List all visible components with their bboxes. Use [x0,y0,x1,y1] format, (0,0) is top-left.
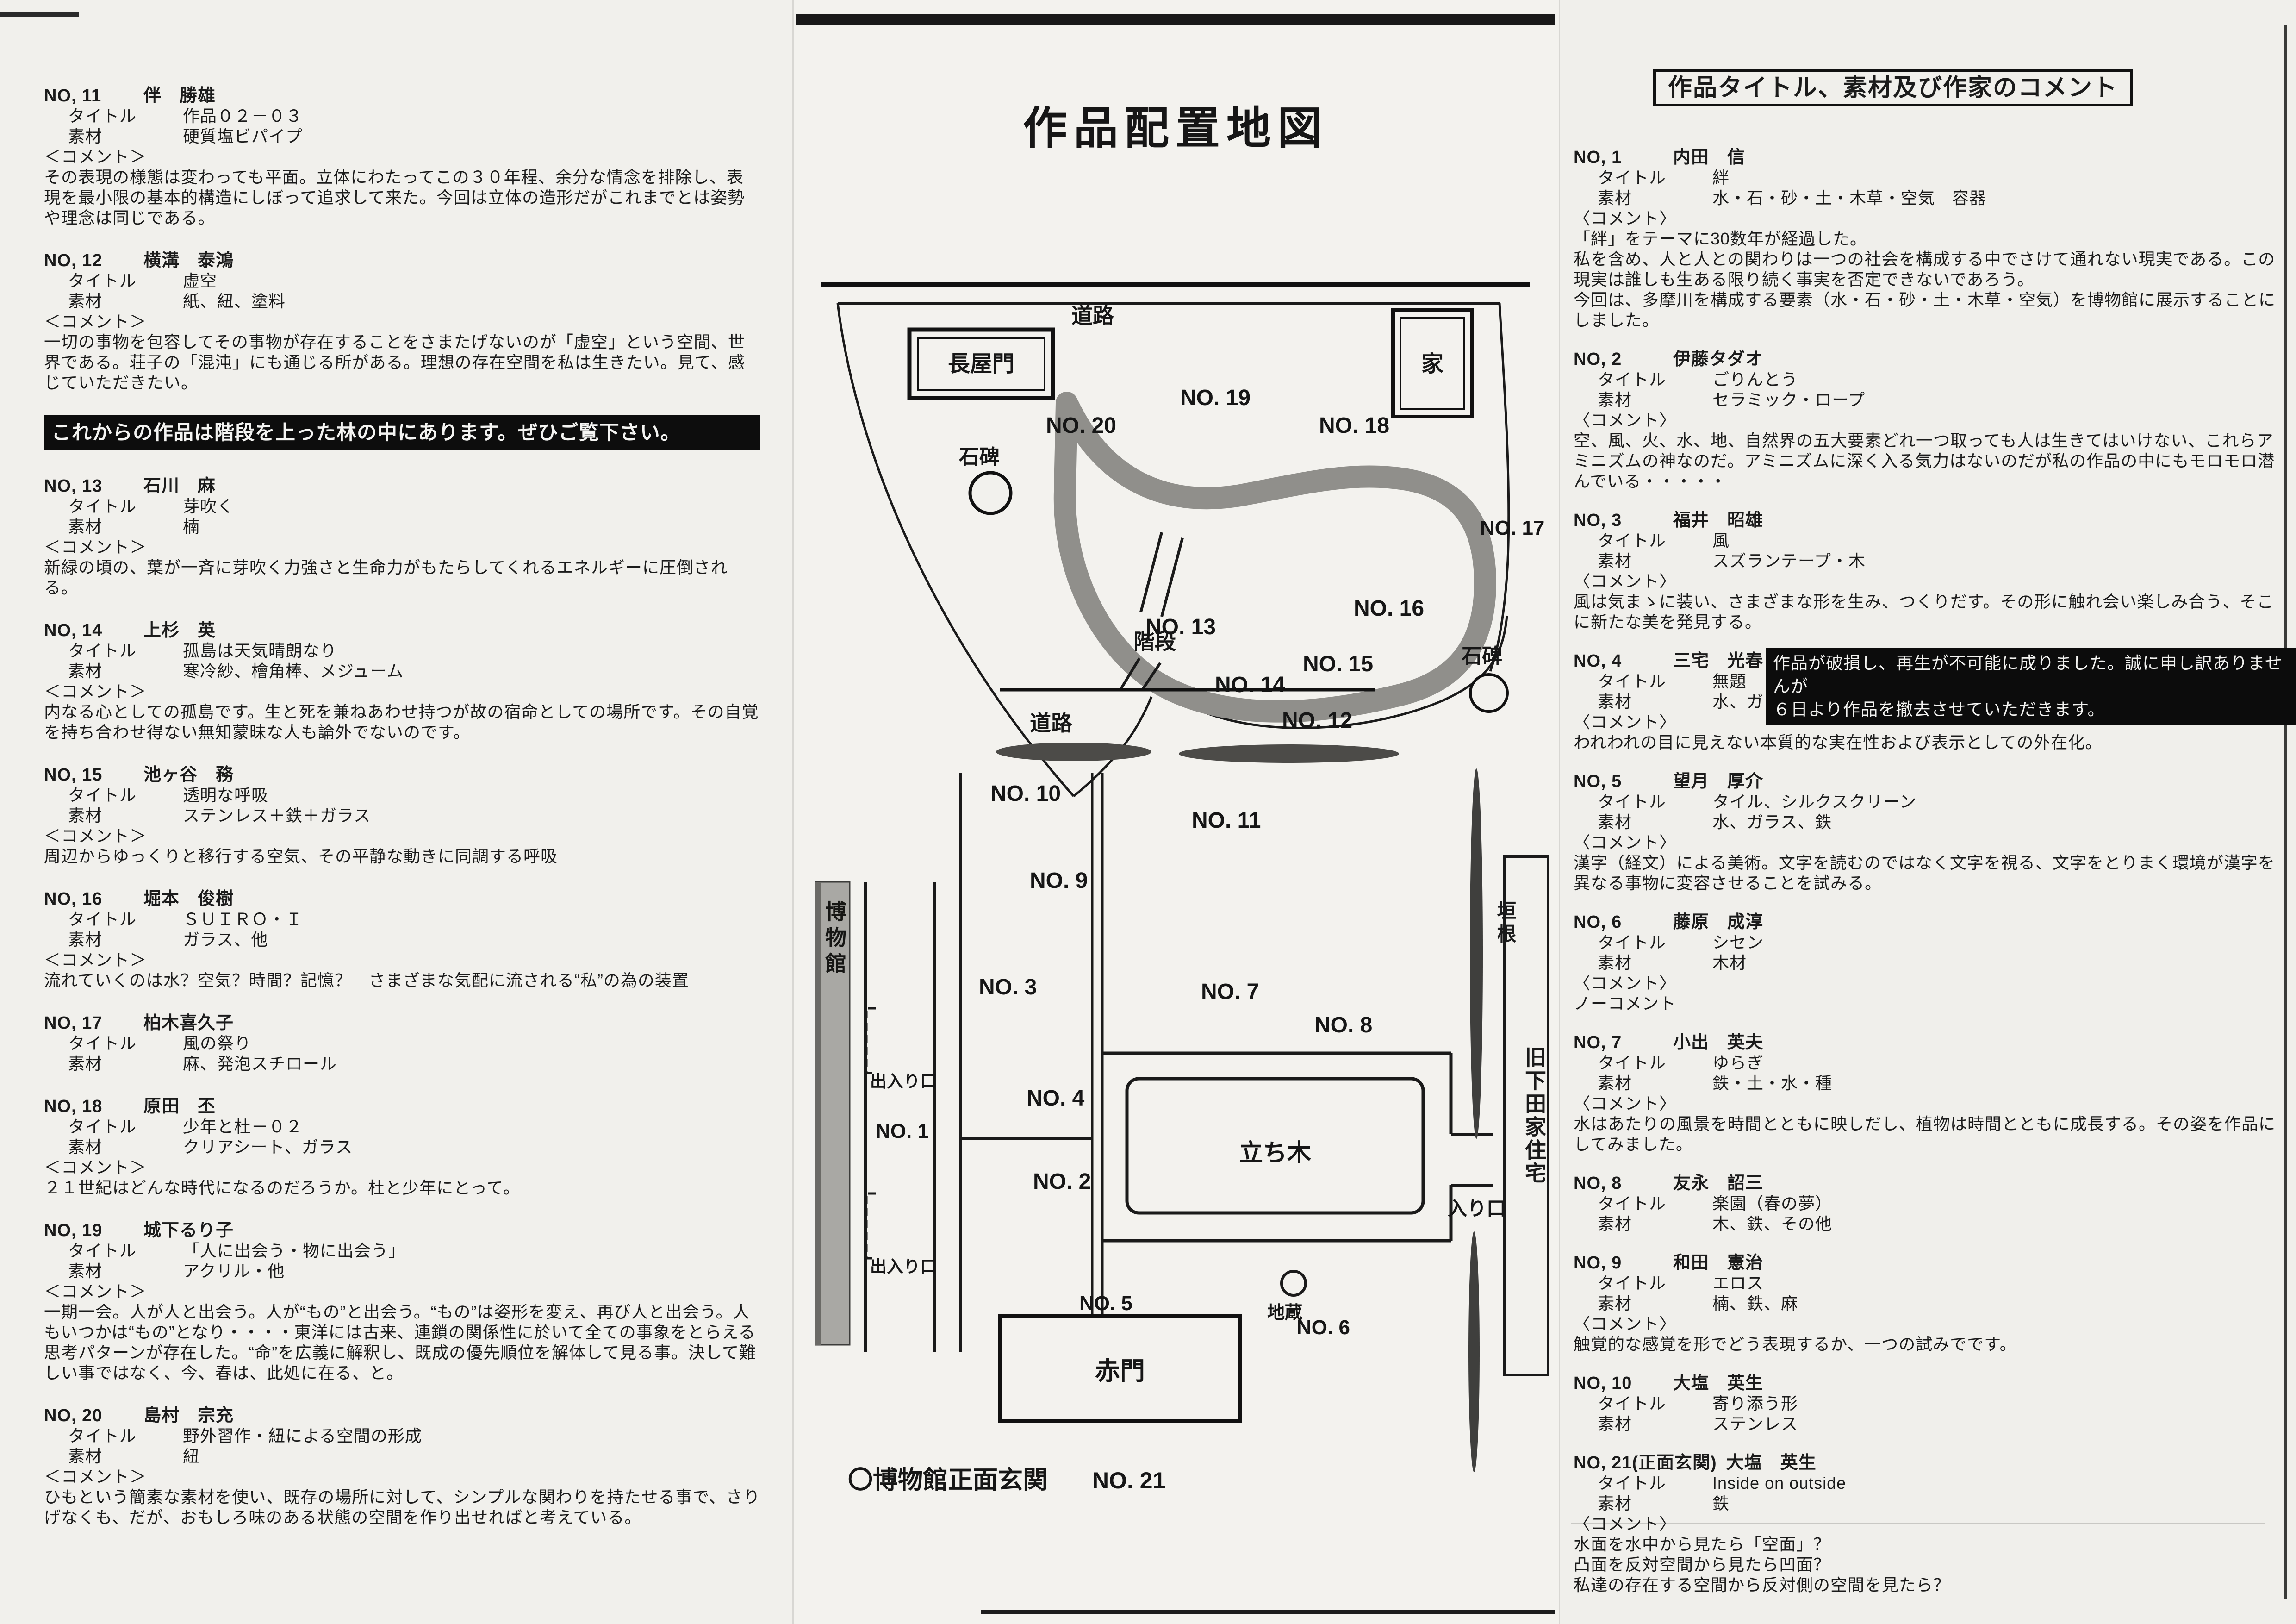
entry-header: NO, 11 伴 勝雄 [44,86,760,106]
title-label: タイトル [1598,671,1712,692]
entry-header: NO, 17 柏木喜久子 [44,1013,760,1033]
removal-notice-line2: ６日より作品を撤去させていただきます。 [1773,698,2296,721]
artist-name: 内田 信 [1673,147,1745,168]
artist-name: 望月 厚介 [1673,771,1763,792]
scan-artifact-right-edge [2284,25,2287,1599]
artwork-material: 鉄 [1712,1493,2281,1514]
title-row: タイトル 孤島は天気晴朗なり [44,641,760,661]
material-row: 素材 ガラス、他 [44,930,760,950]
comment-text: 風は気まゝに装い、さまざまな形を生み、つくりだす。その形に触れ会い楽しみ合う、そ… [1574,592,2281,632]
artwork-entry: NO, 2 伊藤タダオ タイトル ごりんとう 素材 セラミック・ロープ 〈コメン… [1574,349,2281,492]
entry-header: NO, 6 藤原 成淳 [1574,912,2281,932]
artist-name: 石川 麻 [143,476,216,496]
material-row: 素材 鉄 [1574,1493,2281,1514]
hedge-upper [1470,768,1483,1139]
entry-number: NO, 9 [1574,1253,1664,1273]
stairs-notice-banner: これからの作品は階段を上った林の中にあります。ぜひご覧下さい。 [44,415,760,450]
artist-name: 藤原 成淳 [1673,912,1763,932]
comment-label: 〈コメント〉 [1574,973,2281,993]
material-label: 素材 [1598,1493,1712,1514]
artwork-material: 寒冷紗、檜角棒、メジューム [183,661,760,681]
section-header: 作品タイトル、素材及び作家のコメント [1653,69,2133,106]
artwork-title: ＳＵＩＲＯ・Ｉ [183,909,760,930]
material-row: 素材 木材 [1574,953,2281,973]
artwork-title: 作品０２－０３ [183,106,760,126]
artwork-placement-map: 作品配置地図 道路 長屋門 家 石碑 石碑 NO. 20 NO. 19 NO. … [796,14,1555,1616]
entry-header: NO, 13 石川 麻 [44,476,760,496]
entry-number: NO, 7 [1574,1032,1664,1053]
entry-number: NO, 5 [1574,771,1664,792]
material-label: 素材 [68,291,183,312]
artwork-material: ガラス、他 [183,930,760,950]
title-row: タイトル ごりんとう [1574,369,2281,390]
artwork-title: エロス [1712,1273,2281,1293]
artwork-title: シセン [1712,932,2281,953]
artwork-material: 硬質塩ビパイプ [183,126,760,147]
entry-number: NO, 3 [1574,510,1664,531]
removal-notice: 作品が破損し、再生が不可能に成りました。誠に申し訳ありませんが ６日より作品を撤… [1766,648,2296,725]
material-row: 素材 ステンレス＋鉄＋ガラス [44,806,760,826]
map-title: 作品配置地図 [1023,104,1328,153]
entry-number: NO, 6 [1574,912,1664,932]
scan-artifact-bottom-line [981,1610,1555,1614]
artwork-entry: NO, 5 望月 厚介 タイトル タイル、シルクスクリーン 素材 水、ガラス、鉄… [1574,771,2281,893]
map-svg: 作品配置地図 道路 長屋門 家 石碑 石碑 NO. 20 NO. 19 NO. … [796,14,1555,1616]
map-point-no11: NO. 11 [1192,808,1261,833]
artist-name: 大塩 英生 [1726,1453,1817,1473]
comment-text: 一切の事物を包容してその事物が存在することをさまたげないのが「虚空」という空間、… [44,332,760,393]
artwork-title: 野外習作・紐による空間の形成 [183,1426,760,1446]
comment-block: ＜コメント＞ 一切の事物を包容してその事物が存在することをさまたげないのが「虚空… [44,312,760,393]
left-artist-list: NO, 11 伴 勝雄 タイトル 作品０２－０３ 素材 硬質塩ビパイプ ＜コメン… [44,86,760,1550]
material-row: 素材 楠、鉄、麻 [1574,1293,2281,1314]
map-point-no7: NO. 7 [1201,980,1259,1004]
title-label: タイトル [1598,1193,1712,1214]
entry-number: NO, 14 [44,620,139,641]
page-fold-left [792,0,794,1624]
comment-text: 漢字（経文）による美術。文字を読むのではなく文字を視る、文字をとりまく環境が漢字… [1574,853,2281,893]
artwork-material: 紙、紐、塗料 [183,291,760,312]
map-point-no6: NO. 6 [1297,1316,1350,1339]
artwork-material: 木材 [1712,953,2281,973]
entry-number: NO, 19 [44,1220,139,1241]
comment-block: 〈コメント〉 ノーコメント [1574,973,2281,1014]
comment-text: 水面を水中から見たら「空面」？ 凸面を反対空間から見たら凹面？ 私達の存在する空… [1574,1534,2281,1595]
title-label: タイトル [68,1033,183,1054]
scan-artifact-top-left [0,12,79,17]
title-row: タイトル 寄り添う形 [1574,1393,2281,1414]
material-label: 素材 [1598,1214,1712,1234]
artwork-title: Inside on outside [1712,1473,2281,1493]
entry-number: NO, 12 [44,250,139,271]
comment-text: ２１世紀はどんな時代になるのだろうか。杜と少年にとって。 [44,1178,760,1198]
artwork-title: タイル、シルクスクリーン [1712,792,2281,812]
map-point-no4: NO. 4 [1027,1086,1085,1111]
artist-name: 城下るり子 [143,1220,234,1241]
hedge-vertical-label: 垣根 [1491,900,1519,947]
title-row: タイトル 少年と杜－０２ [44,1117,760,1137]
map-point-no18: NO. 18 [1319,413,1389,438]
footnote-main-entrance: 〇博物館正面玄関 [848,1466,1048,1494]
scan-artifact-top-band [796,14,1555,25]
material-label: 素材 [68,126,183,147]
title-label: タイトル [68,1241,183,1261]
title-label: タイトル [1598,1273,1712,1293]
wall-oval-left [996,743,1151,761]
artwork-entry: NO, 17 柏木喜久子 タイトル 風の祭り 素材 麻、発泡スチロール [44,1013,760,1074]
material-row: 素材 ステンレス [1574,1414,2281,1434]
artwork-material: スズランテープ・木 [1712,551,2281,571]
hedge-lower [1468,1231,1480,1472]
artwork-title: 風の祭り [183,1033,760,1054]
title-label: タイトル [1598,1053,1712,1073]
comment-block: ＜コメント＞ ひもという簡素な素材を使い、既存の場所に対して、シンプルな関わりを… [44,1467,760,1528]
artwork-material: 水・石・砂・土・木草・空気 容器 [1712,188,2281,208]
sekihi-b-label: 石碑 [1462,645,1502,668]
artwork-entry: NO, 12 横溝 泰鴻 タイトル 虚空 素材 紙、紐、塗料 ＜コメント＞ 一切… [44,250,760,393]
map-point-no1: NO. 1 [876,1120,929,1143]
material-label: 素材 [1598,812,1712,832]
title-row: タイトル 作品０２－０３ [44,106,760,126]
title-row: タイトル 風 [1574,531,2281,551]
entry-header: NO, 12 横溝 泰鴻 [44,250,760,271]
artwork-entry: NO, 7 小出 英夫 タイトル ゆらぎ 素材 鉄・土・水・種 〈コメント〉 水… [1574,1032,2281,1155]
artwork-title: ごりんとう [1712,369,2281,390]
comment-text: 「絆」をテーマに30数年が経過した。 私を含め、人と人との関わりは一つの社会を構… [1574,229,2281,331]
comment-label: ＜コメント＞ [44,147,760,167]
artwork-material: アクリル・他 [183,1261,760,1281]
entry-number: NO, 4 [1574,651,1664,671]
nagayamon-label: 長屋門 [948,352,1014,376]
sekihi-a-label: 石碑 [959,446,1000,468]
old-residence-vertical-label: 旧下田家住宅 [1519,1046,1549,1185]
entry-number: NO, 20 [44,1405,139,1426]
artwork-material: ステンレス [1712,1414,2281,1434]
material-row: 素材 クリアシート、ガラス [44,1137,760,1157]
artist-name: 小出 英夫 [1673,1032,1763,1053]
map-point-no14: NO. 14 [1215,673,1285,697]
artwork-material: セラミック・ロープ [1712,390,2281,410]
entry-header: NO, 4 三宅 光春 作品が破損し、再生が不可能に成りました。誠に申し訳ありま… [1574,651,2281,671]
artwork-title: 楽園（春の夢） [1712,1193,2281,1214]
title-row: タイトル ゆらぎ [1574,1053,2281,1073]
material-row: 素材 紙、紐、塗料 [44,291,760,312]
comment-label: ＜コメント＞ [44,1467,760,1487]
artwork-title: 風 [1712,531,2281,551]
entry-number: NO, 1 [1574,147,1664,168]
material-label: 素材 [1598,390,1712,410]
artwork-entry: NO, 11 伴 勝雄 タイトル 作品０２－０３ 素材 硬質塩ビパイプ ＜コメン… [44,86,760,228]
comment-block: ＜コメント＞ 一期一会。人が人と出会う。人が“もの”と出会う。“もの”は姿形を変… [44,1281,760,1383]
title-label: タイトル [68,1117,183,1137]
comment-text: 新緑の頃の、葉が一斉に芽吹く力強さと生命力がもたらしてくれるエネルギーに圧倒され… [44,557,760,598]
stairs-upper-lines [1141,532,1182,617]
material-label: 素材 [68,1054,183,1074]
artwork-entry: NO, 9 和田 憲治 タイトル エロス 素材 楠、鉄、麻 〈コメント〉 触覚的… [1574,1253,2281,1355]
title-row: タイトル 虚空 [44,271,760,291]
comment-label: 〈コメント〉 [1574,1314,2281,1334]
material-label: 素材 [1598,1073,1712,1093]
artwork-material: 麻、発泡スチロール [183,1054,760,1074]
title-row: タイトル 風の祭り [44,1033,760,1054]
comment-text: その表現の様態は変わっても平面。立体にわたってこの３０年程、余分な情念を排除し、… [44,167,760,228]
artwork-material: 紐 [183,1446,760,1467]
comment-text: われわれの目に見えない本質的な実在性および表示としての外在化。 [1574,732,2281,753]
tree-enclosure-opening [1451,1134,1493,1185]
entrance-exit-bracket-b [866,1193,876,1258]
artist-name: 福井 昭雄 [1673,510,1763,531]
artist-name: 伊藤タダオ [1673,349,1763,369]
material-label: 素材 [68,1137,183,1157]
artist-name: 大塩 英生 [1673,1373,1763,1393]
title-label: タイトル [1598,168,1712,188]
map-point-no8: NO. 8 [1314,1013,1372,1037]
block-wall-pair [1092,773,1102,1316]
artist-name: 三宅 光春 [1673,651,1763,671]
comment-label: ＜コメント＞ [44,1281,760,1302]
entry-number: NO, 11 [44,86,139,106]
title-label: タイトル [68,909,183,930]
material-label: 素材 [1598,1293,1712,1314]
title-row: タイトル 「人に出会う・物に出会う」 [44,1241,760,1261]
map-point-no3: NO. 3 [979,975,1037,999]
material-row: 素材 セラミック・ロープ [1574,390,2281,410]
artwork-title: 虚空 [183,271,760,291]
comment-text: 水はあたりの風景を時間とともに映しだし、植物は時間とともに成長する。その姿を作品… [1574,1114,2281,1155]
sekihi-b-circle [1470,675,1507,712]
artwork-title: 透明な呼吸 [183,785,760,806]
entry-header: NO, 2 伊藤タダオ [1574,349,2281,369]
comment-label: 〈コメント〉 [1574,832,2281,853]
material-label: 素材 [68,1446,183,1467]
material-label: 素材 [68,517,183,537]
title-row: タイトル 芽吹く [44,496,760,517]
comment-text: 一期一会。人が人と出会う。人が“もの”と出会う。“もの”は姿形を変え、再び人と出… [44,1302,760,1383]
title-row: タイトル 楽園（春の夢） [1574,1193,2281,1214]
comment-block: 〈コメント〉 触覚的な感覚を形でどう表現するか、一つの試みでです。 [1574,1314,2281,1355]
artwork-entry: NO, 3 福井 昭雄 タイトル 風 素材 スズランテープ・木 〈コメント〉 風… [1574,510,2281,632]
artwork-material: 鉄・土・水・種 [1712,1073,2281,1093]
artwork-title: 孤島は天気晴朗なり [183,641,760,661]
entry-header: NO, 21(正面玄関) 大塩 英生 [1574,1453,2281,1473]
map-point-no19: NO. 19 [1180,386,1251,410]
house-label: 家 [1421,352,1444,376]
artist-name: 上杉 英 [143,620,216,641]
title-label: タイトル [1598,1393,1712,1414]
artwork-material: クリアシート、ガラス [183,1137,760,1157]
title-row: タイトル 絆 [1574,168,2281,188]
entry-header: NO, 7 小出 英夫 [1574,1032,2281,1053]
comment-label: ＜コメント＞ [44,950,760,970]
map-point-no10: NO. 10 [990,781,1061,806]
artist-name: 堀本 俊樹 [143,889,234,909]
comment-label: ＜コメント＞ [44,312,760,332]
material-row: 素材 木、鉄、その他 [1574,1214,2281,1234]
material-row: 素材 鉄・土・水・種 [1574,1073,2281,1093]
entry-number: NO, 21(正面玄関) [1574,1453,1717,1473]
artwork-entry: NO, 8 友永 詔三 タイトル 楽園（春の夢） 素材 木、鉄、その他 [1574,1173,2281,1234]
material-row: 素材 水、ガラス、鉄 [1574,812,2281,832]
comment-text: 空、風、火、水、地、自然界の五大要素どれ一つ取っても人は生きてはいけない、これら… [1574,431,2281,492]
entry-header: NO, 16 堀本 俊樹 [44,889,760,909]
comment-text: 内なる心としての孤島です。生と死を兼ねあわせ持つが故の宿命としての場所です。その… [44,702,760,743]
right-artist-list: 作品タイトル、素材及び作家のコメント NO, 1 内田 信 タイトル 絆 素材 … [1574,69,2281,1614]
map-point-no2: NO. 2 [1033,1169,1091,1194]
comment-label: ＜コメント＞ [44,537,760,557]
artist-name: 伴 勝雄 [143,86,216,106]
material-label: 素材 [1598,551,1712,571]
entry-number: NO, 2 [1574,349,1664,369]
title-label: タイトル [1598,792,1712,812]
entry-header: NO, 10 大塩 英生 [1574,1373,2281,1393]
comment-block: 〈コメント〉 水はあたりの風景を時間とともに映しだし、植物は時間とともに成長する… [1574,1093,2281,1155]
artwork-title: 芽吹く [183,496,760,517]
material-row: 素材 麻、発泡スチロール [44,1054,760,1074]
artwork-entry: NO, 10 大塩 英生 タイトル 寄り添う形 素材 ステンレス [1574,1373,2281,1434]
entry-number: NO, 15 [44,765,139,785]
akamon-label: 赤門 [1095,1357,1145,1385]
artwork-title: 「人に出会う・物に出会う」 [183,1241,760,1261]
material-label: 素材 [1598,188,1712,208]
comment-text: 周辺からゆっくりと移行する空気、その平静な動きに同調する呼吸 [44,846,760,867]
artwork-entry: NO, 20 島村 宗充 タイトル 野外習作・紐による空間の形成 素材 紐 ＜コ… [44,1405,760,1528]
entry-header: NO, 19 城下るり子 [44,1220,760,1241]
entry-number: NO, 13 [44,476,139,496]
comment-text: ノーコメント [1574,993,2281,1014]
title-label: タイトル [68,785,183,806]
scanned-exhibition-leaflet: { "labels": { "title": "タイトル", "material… [0,0,2296,1624]
artwork-title: 寄り添う形 [1712,1393,2281,1414]
entrance-exit-label-b: 出入り口 [870,1257,937,1276]
map-point-no15: NO. 15 [1303,652,1373,676]
map-point-no5: NO. 5 [1079,1292,1132,1315]
artist-name: 池ヶ谷 務 [143,765,234,785]
stairs-label: 階段 [1133,630,1176,654]
title-label: タイトル [1598,932,1712,953]
sekihi-a-circle [970,473,1011,513]
comment-block: 〈コメント〉 漢字（経文）による美術。文字を読むのではなく文字を視る、文字をとり… [1574,832,2281,893]
artwork-entry: NO, 6 藤原 成淳 タイトル シセン 素材 木材 〈コメント〉 ノーコメント [1574,912,2281,1014]
artwork-entry: NO, 1 内田 信 タイトル 絆 素材 水・石・砂・土・木草・空気 容器 〈コ… [1574,147,2281,331]
comment-label: ＜コメント＞ [44,1157,760,1178]
title-label: タイトル [68,271,183,291]
wall-oval-right [1179,744,1399,763]
entrance-label: 入り口 [1448,1198,1506,1219]
title-label: タイトル [68,106,183,126]
tree-label: 立ち木 [1239,1140,1311,1167]
material-row: 素材 スズランテープ・木 [1574,551,2281,571]
museum-vertical-label: 博物館 [819,900,850,978]
road-top-label: 道路 [1071,304,1114,328]
comment-label: 〈コメント〉 [1574,1514,2281,1534]
material-row: 素材 紐 [44,1446,760,1467]
comment-block: ＜コメント＞ 周辺からゆっくりと移行する空気、その平静な動きに同調する呼吸 [44,826,760,867]
artwork-material: 楠 [183,517,760,537]
title-row: タイトル ＳＵＩＲＯ・Ｉ [44,909,760,930]
artwork-title: ゆらぎ [1712,1053,2281,1073]
artwork-material: 木、鉄、その他 [1712,1214,2281,1234]
map-point-no20: NO. 20 [1046,413,1116,438]
comment-text: 触覚的な感覚を形でどう表現するか、一つの試みでです。 [1574,1334,2281,1355]
comment-block: 〈コメント〉 風は気まゝに装い、さまざまな形を生み、つくりだす。その形に触れ会い… [1574,571,2281,632]
title-label: タイトル [68,641,183,661]
material-label: 素材 [68,661,183,681]
page-fold-right [1559,0,1560,1624]
title-label: タイトル [1598,369,1712,390]
material-label: 素材 [1598,692,1712,712]
map-point-no17: NO. 17 [1480,517,1544,539]
entrance-exit-label-a: 出入り口 [870,1072,937,1091]
entry-header: NO, 5 望月 厚介 [1574,771,2281,792]
comment-block: ＜コメント＞ 新緑の頃の、葉が一斉に芽吹く力強さと生命力がもたらしてくれるエネル… [44,537,760,598]
material-row: 素材 アクリル・他 [44,1261,760,1281]
artwork-title: 絆 [1712,168,2281,188]
entry-header: NO, 18 原田 丕 [44,1096,760,1117]
artwork-material: ステンレス＋鉄＋ガラス [183,806,760,826]
artwork-entry: NO, 18 原田 丕 タイトル 少年と杜－０２ 素材 クリアシート、ガラス ＜… [44,1096,760,1198]
entry-header: NO, 14 上杉 英 [44,620,760,641]
entry-header: NO, 15 池ヶ谷 務 [44,765,760,785]
title-label: タイトル [1598,1473,1712,1493]
title-label: タイトル [68,496,183,517]
entry-header: NO, 9 和田 憲治 [1574,1253,2281,1273]
entry-header: NO, 20 島村 宗充 [44,1405,760,1426]
title-row: タイトル シセン [1574,932,2281,953]
material-label: 素材 [68,930,183,950]
artist-name: 島村 宗充 [143,1405,234,1426]
comment-block: ＜コメント＞ 内なる心としての孤島です。生と死を兼ねあわせ持つが故の宿命としての… [44,681,760,743]
title-row: タイトル エロス [1574,1273,2281,1293]
entry-number: NO, 17 [44,1013,139,1033]
entry-header: NO, 3 福井 昭雄 [1574,510,2281,531]
comment-label: 〈コメント〉 [1574,208,2281,229]
artwork-entry: NO, 4 三宅 光春 作品が破損し、再生が不可能に成りました。誠に申し訳ありま… [1574,651,2281,753]
footnote-no21: NO. 21 [1092,1468,1165,1493]
comment-block: 〈コメント〉 水面を水中から見たら「空面」？ 凸面を反対空間から見たら凹面？ 私… [1574,1514,2281,1595]
entry-number: NO, 16 [44,889,139,909]
artwork-entry: NO, 16 堀本 俊樹 タイトル ＳＵＩＲＯ・Ｉ 素材 ガラス、他 ＜コメント… [44,889,760,991]
comment-label: 〈コメント〉 [1574,410,2281,431]
artist-name: 原田 丕 [143,1096,216,1117]
artwork-entry: NO, 14 上杉 英 タイトル 孤島は天気晴朗なり 素材 寒冷紗、檜角棒、メジ… [44,620,760,743]
entry-number: NO, 8 [1574,1173,1664,1193]
artwork-title: 少年と杜－０２ [183,1117,760,1137]
material-row: 素材 寒冷紗、檜角棒、メジューム [44,661,760,681]
material-row: 素材 楠 [44,517,760,537]
artwork-material: 水、ガラス、鉄 [1712,812,2281,832]
entry-number: NO, 18 [44,1096,139,1117]
title-row: タイトル Inside on outside [1574,1473,2281,1493]
entry-header: NO, 8 友永 詔三 [1574,1173,2281,1193]
artist-name: 友永 詔三 [1673,1173,1763,1193]
comment-block: ＜コメント＞ ２１世紀はどんな時代になるのだろうか。杜と少年にとって。 [44,1157,760,1198]
comment-label: ＜コメント＞ [44,681,760,702]
title-label: タイトル [68,1426,183,1446]
road-lower-label: 道路 [1030,711,1073,735]
artwork-material: 楠、鉄、麻 [1712,1293,2281,1314]
title-row: タイトル 透明な呼吸 [44,785,760,806]
comment-label: 〈コメント〉 [1574,571,2281,592]
entrance-exit-bracket-a [866,1008,876,1073]
comment-text: 流れていくのは水？空気？時間？記憶？ さまざまな気配に流される“私”の為の装置 [44,970,760,991]
comment-block: ＜コメント＞ 流れていくのは水？空気？時間？記憶？ さまざまな気配に流される“私… [44,950,760,991]
artwork-entry: NO, 19 城下るり子 タイトル 「人に出会う・物に出会う」 素材 アクリル・… [44,1220,760,1383]
comment-text: ひもという簡素な素材を使い、既存の場所に対して、シンプルな関わりを持たせる事で、… [44,1487,760,1528]
comment-label: ＜コメント＞ [44,826,760,846]
comment-label: 〈コメント〉 [1574,1093,2281,1114]
title-row: タイトル タイル、シルクスクリーン [1574,792,2281,812]
map-point-no12: NO. 12 [1282,708,1352,733]
